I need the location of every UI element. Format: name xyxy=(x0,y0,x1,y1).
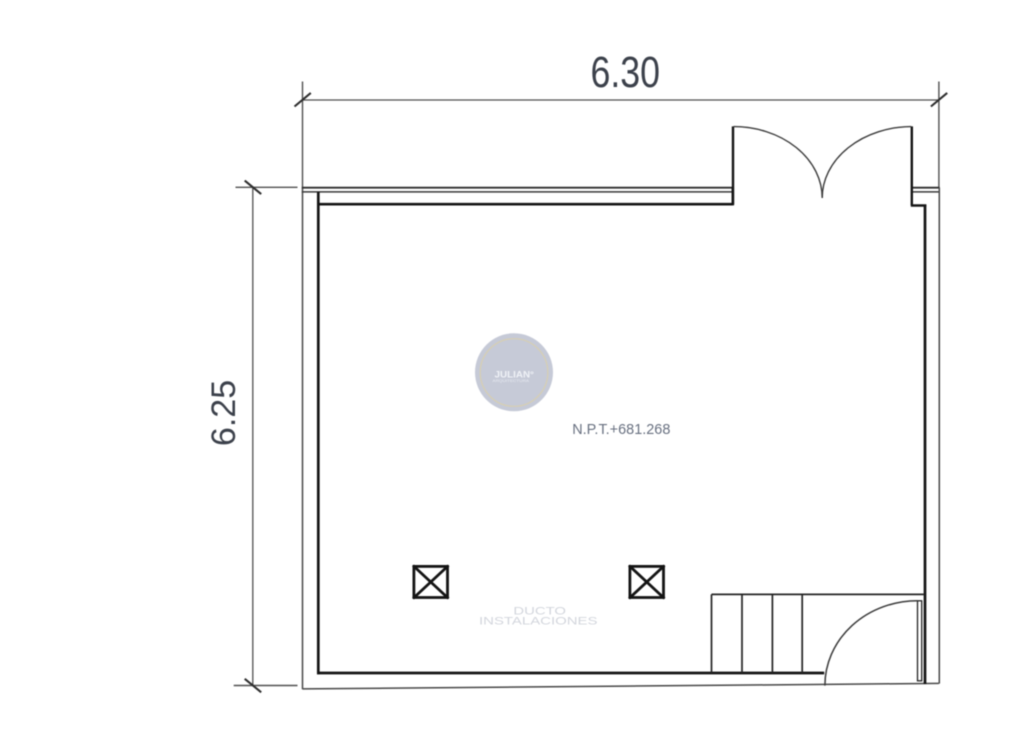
svg-text:ARQUITECTURA: ARQUITECTURA xyxy=(493,378,530,383)
svg-text:6.30: 6.30 xyxy=(591,48,661,97)
svg-text:6.25: 6.25 xyxy=(205,380,243,446)
svg-text:N.P.T.+681.268: N.P.T.+681.268 xyxy=(572,421,670,438)
svg-text:INSTALACIONES: INSTALACIONES xyxy=(479,616,598,628)
